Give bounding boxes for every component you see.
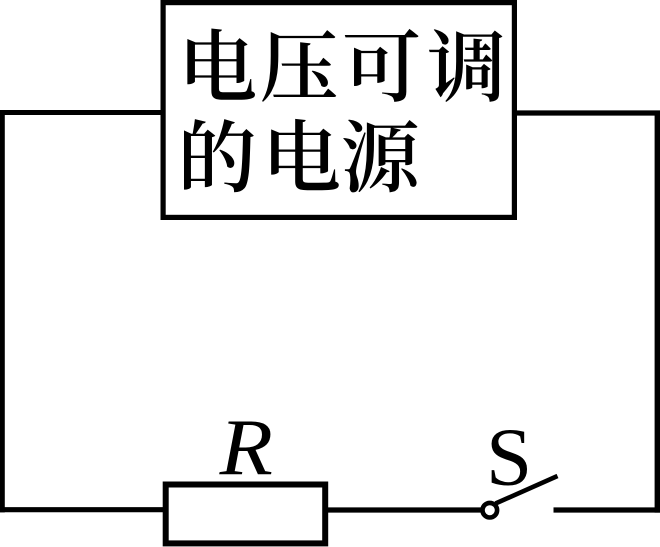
svg-text:S: S	[486, 410, 532, 502]
svg-text:R: R	[219, 403, 273, 492]
